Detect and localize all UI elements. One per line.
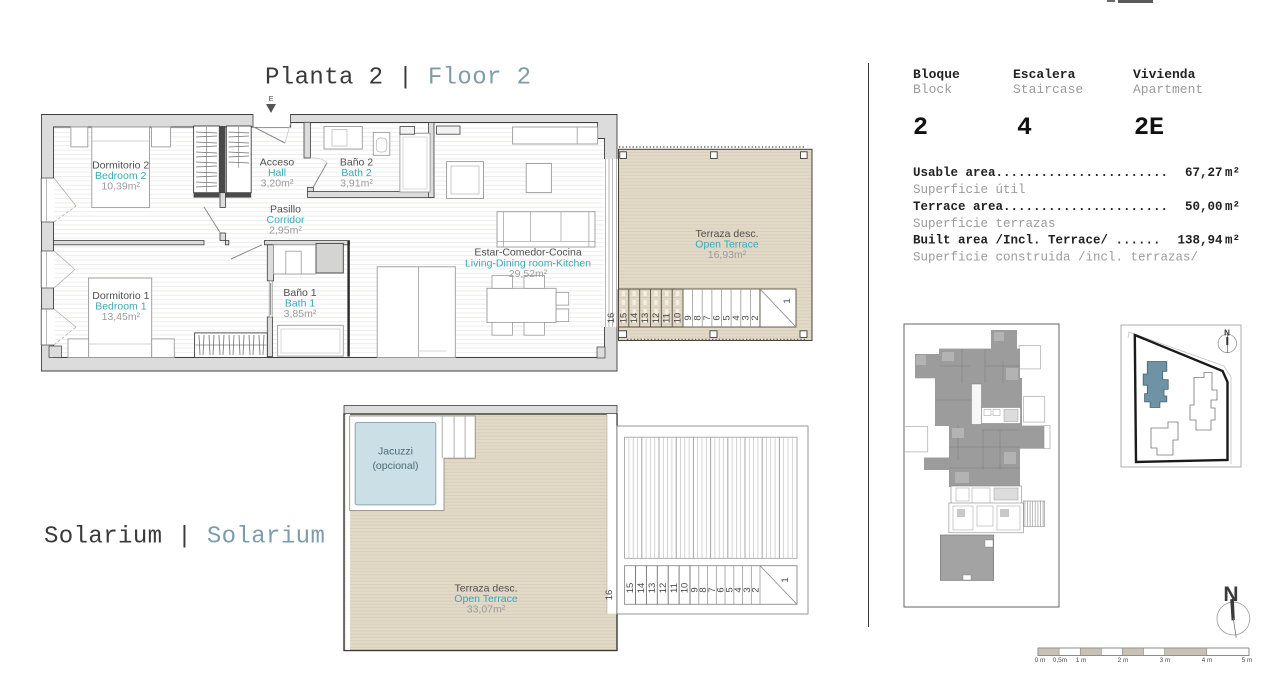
- svg-text:15: 15: [625, 583, 636, 594]
- svg-text:Escalera: Escalera: [1013, 67, 1076, 82]
- svg-text:2E: 2E: [1134, 113, 1164, 142]
- svg-text:14: 14: [636, 583, 647, 594]
- svg-text:13: 13: [640, 313, 651, 324]
- svg-text:0,5m: 0,5m: [1053, 657, 1067, 664]
- svg-text:Terrace area..................: Terrace area......................: [913, 200, 1168, 214]
- svg-text:29,52m²: 29,52m²: [509, 268, 548, 280]
- svg-text:10,39m²: 10,39m²: [101, 181, 140, 193]
- svg-text:E: E: [268, 94, 273, 103]
- svg-text:Jacuzzi: Jacuzzi: [378, 446, 413, 458]
- svg-text:Built area /Incl. Terrace/ ...: Built area /Incl. Terrace/ ......: [913, 234, 1161, 248]
- svg-text:33,07m²: 33,07m²: [467, 604, 506, 616]
- svg-text:Vivienda: Vivienda: [1133, 67, 1196, 82]
- svg-text:3 m: 3 m: [1160, 657, 1171, 664]
- svg-text:2: 2: [750, 315, 761, 320]
- svg-text:Block: Block: [913, 82, 952, 97]
- svg-text:2,95m²: 2,95m²: [269, 225, 302, 237]
- svg-text:16: 16: [604, 590, 615, 601]
- svg-text:50,00 m²: 50,00 m²: [1185, 200, 1240, 214]
- svg-text:2: 2: [913, 113, 928, 142]
- svg-text:1: 1: [780, 577, 791, 582]
- svg-text:1 m: 1 m: [1076, 657, 1087, 664]
- svg-text:13: 13: [647, 583, 658, 594]
- svg-text:Superficie útil: Superficie útil: [913, 183, 1026, 197]
- svg-text:12: 12: [658, 583, 669, 594]
- svg-text:11: 11: [669, 583, 680, 593]
- svg-text:14: 14: [629, 313, 640, 324]
- svg-text:5 m: 5 m: [1242, 657, 1253, 664]
- svg-text:12: 12: [651, 313, 662, 324]
- svg-text:2 m: 2 m: [1118, 657, 1129, 664]
- svg-text:Bloque: Bloque: [913, 67, 960, 82]
- svg-text:3,91m²: 3,91m²: [340, 178, 373, 190]
- svg-text:Superficie construida /incl. t: Superficie construida /incl. terrazas/: [913, 251, 1198, 265]
- svg-text:(opcional): (opcional): [372, 460, 418, 472]
- svg-text:13,45m²: 13,45m²: [102, 311, 141, 323]
- svg-text:138,94 m²: 138,94 m²: [1177, 234, 1240, 248]
- svg-text:Apartment: Apartment: [1133, 82, 1203, 97]
- svg-text:Solarium | Solarium: Solarium | Solarium: [44, 524, 325, 551]
- svg-text:3,85m²: 3,85m²: [284, 308, 317, 320]
- svg-text:1: 1: [782, 298, 793, 303]
- svg-text:67,27 m²: 67,27 m²: [1185, 166, 1240, 180]
- svg-text:2: 2: [751, 587, 762, 592]
- svg-text:11: 11: [662, 313, 673, 323]
- svg-text:4: 4: [1017, 113, 1032, 142]
- svg-text:Usable area...................: Usable area.......................: [913, 166, 1168, 180]
- svg-text:Planta 2 | Floor 2: Planta 2 | Floor 2: [265, 65, 531, 92]
- svg-text:Superficie terrazas: Superficie terrazas: [913, 217, 1056, 231]
- svg-text:15: 15: [618, 313, 629, 324]
- svg-text:4 m: 4 m: [1202, 657, 1213, 664]
- svg-text:Staircase: Staircase: [1013, 82, 1083, 97]
- svg-text:16,93m²: 16,93m²: [708, 249, 747, 261]
- svg-text:3,20m²: 3,20m²: [261, 178, 294, 190]
- svg-text:16: 16: [606, 313, 617, 324]
- svg-text:0 m: 0 m: [1035, 657, 1046, 664]
